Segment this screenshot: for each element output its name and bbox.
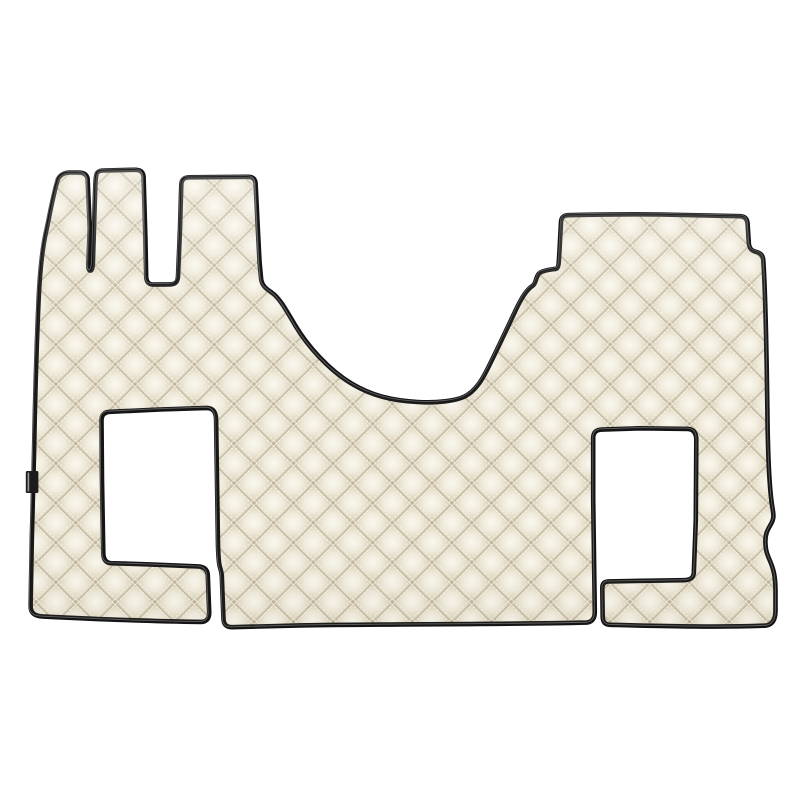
brand-label-tab: [26, 471, 39, 493]
floor-mat-product-photo: [0, 0, 800, 800]
floor-mat-illustration: [0, 0, 800, 800]
